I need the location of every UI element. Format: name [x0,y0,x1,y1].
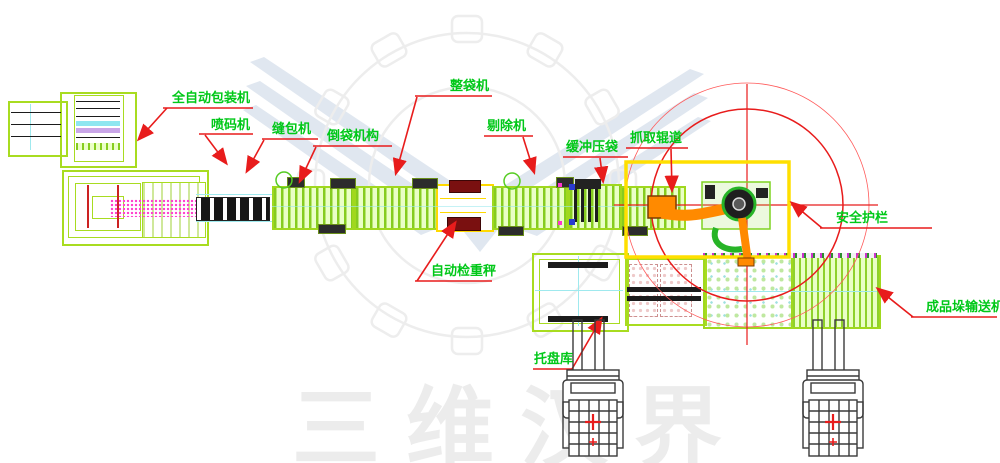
stack-axis [703,291,877,292]
checkweigher-head-bottom [447,217,481,231]
leader-bag-shaping [396,96,492,173]
bag-shaping-conveyor [354,186,438,230]
conveyor-motor [318,224,346,234]
roll-line [76,108,120,109]
purple-film-band [76,128,120,133]
stacking-station [703,255,795,329]
packer-red-rail [87,185,89,228]
staging-bar [627,287,701,292]
pallet-truck-right [803,320,863,456]
corner-marker [569,219,575,225]
conveyor-motor [287,177,305,188]
magazine-axis [535,290,623,291]
press-head [575,179,601,189]
checkweigher-head-top [449,180,481,193]
packaging-line-drawing: 三维汉界 [0,0,1000,463]
label-bag-shaping: 整袋机 [450,79,489,93]
film-guide-line [30,104,31,150]
checkweigher-line [440,212,486,213]
rejecting-conveyor [492,186,568,230]
finished-stack-conveyor-body [791,255,881,329]
label-pickup-conveyor: 抓取辊道 [630,131,682,145]
film-line [11,124,61,125]
sensor-dot [558,221,562,225]
pallet-magazine-inner [539,259,620,324]
film-line [11,112,61,113]
roll-line [76,137,120,138]
label-checkweigher: 自动检重秤 [431,264,496,278]
label-finished-stack-conveyor: 成品垛输送机 [926,300,1000,314]
cyan-film-band [76,121,120,126]
leader-inkjet-coder [199,134,253,163]
stack-ticks [703,253,877,258]
sensor-dot [558,183,562,187]
magazine-bar [548,262,608,268]
conveyor-motor [330,178,356,189]
roll-line [76,116,120,117]
label-auto-packer: 全自动包装机 [172,91,250,105]
rail-line [196,221,282,222]
press-bars [574,188,600,222]
leader-bag-inverting [300,146,392,181]
staging-bar [627,296,701,301]
conveyor-motor [412,178,438,189]
line-axis [272,206,682,207]
brand-watermark-text: 三维汉界 [292,358,748,463]
magazine-bar [548,316,608,322]
leader-pickup-conveyor [626,148,688,190]
slat-outfeed-conveyor [196,197,270,221]
pickup-roller-conveyor [620,186,686,230]
label-inkjet-coder: 喷码机 [211,118,250,132]
label-safety-fence: 安全护栏 [836,211,888,225]
label-rejecting: 剔除机 [487,119,526,133]
label-bag-inverting: 倒袋机构 [327,129,379,143]
rail-line [196,194,282,195]
leader-rejecting [484,136,534,172]
conveyor-motor [498,226,524,236]
checkweigher-line [440,198,486,199]
film-line [11,136,61,137]
film-feed-frame [8,101,68,157]
roll-belt [76,143,120,150]
label-pallet-magazine: 托盘库 [534,352,573,366]
label-bag-sewing: 缝包机 [272,122,311,136]
label-buffer-pressing: 缓冲压袋 [566,140,618,154]
conveyor-motor [622,226,648,236]
leader-bag-sewing [247,139,318,171]
corner-marker [569,184,575,190]
bag-flow-band [110,199,196,217]
roll-line [76,101,120,102]
